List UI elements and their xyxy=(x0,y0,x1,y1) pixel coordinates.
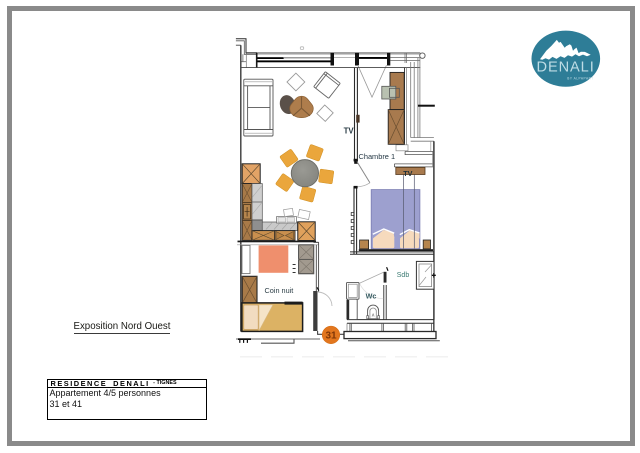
svg-text:31: 31 xyxy=(325,331,337,342)
svg-text:Chambre 1: Chambre 1 xyxy=(359,152,396,161)
svg-text:Coin nuit: Coin nuit xyxy=(265,286,294,295)
svg-text:DENALI: DENALI xyxy=(537,60,595,76)
svg-text:Wc: Wc xyxy=(366,292,377,301)
svg-text:TV: TV xyxy=(403,169,412,178)
svg-text:BY ALPAPART: BY ALPAPART xyxy=(567,76,594,80)
svg-text:Sdb: Sdb xyxy=(397,272,410,279)
svg-text:TV: TV xyxy=(344,126,355,135)
